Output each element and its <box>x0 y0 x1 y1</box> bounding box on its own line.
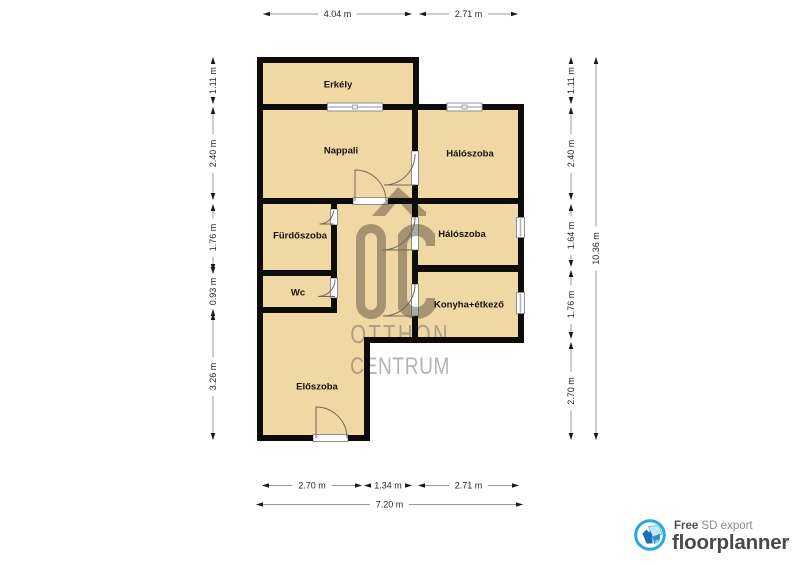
svg-text:Előszoba: Előszoba <box>296 382 338 393</box>
svg-text:Wc: Wc <box>291 288 305 299</box>
svg-text:Hálószoba: Hálószoba <box>446 149 494 160</box>
svg-text:3.26 m: 3.26 m <box>208 363 218 391</box>
svg-text:7.20 m: 7.20 m <box>376 499 404 509</box>
svg-text:Fürdőszoba: Fürdőszoba <box>273 231 328 242</box>
svg-text:Hálószoba: Hálószoba <box>438 229 486 240</box>
svg-text:Nappali: Nappali <box>324 146 358 157</box>
svg-text:floorplanner: floorplanner <box>672 531 789 554</box>
svg-text:Erkély: Erkély <box>324 80 353 91</box>
svg-text:2.71 m: 2.71 m <box>455 9 483 19</box>
svg-text:1.76 m: 1.76 m <box>566 291 576 319</box>
svg-text:10.36 m: 10.36 m <box>591 232 601 265</box>
svg-text:2.40 m: 2.40 m <box>566 140 576 168</box>
svg-text:2.40 m: 2.40 m <box>208 140 218 168</box>
svg-text:2.70 m: 2.70 m <box>566 377 576 405</box>
svg-text:4.04 m: 4.04 m <box>324 9 352 19</box>
svg-text:Konyha+étkező: Konyha+étkező <box>434 300 504 311</box>
svg-text:2.71 m: 2.71 m <box>455 480 483 490</box>
svg-text:1.76 m: 1.76 m <box>208 224 218 252</box>
svg-text:2.70 m: 2.70 m <box>298 480 326 490</box>
svg-text:1.34 m: 1.34 m <box>374 480 402 490</box>
svg-text:1.11 m: 1.11 m <box>208 67 218 94</box>
svg-text:0.93 m: 0.93 m <box>208 278 218 306</box>
svg-text:1.11 m: 1.11 m <box>566 67 576 94</box>
svg-text:1.64 m: 1.64 m <box>566 222 576 250</box>
